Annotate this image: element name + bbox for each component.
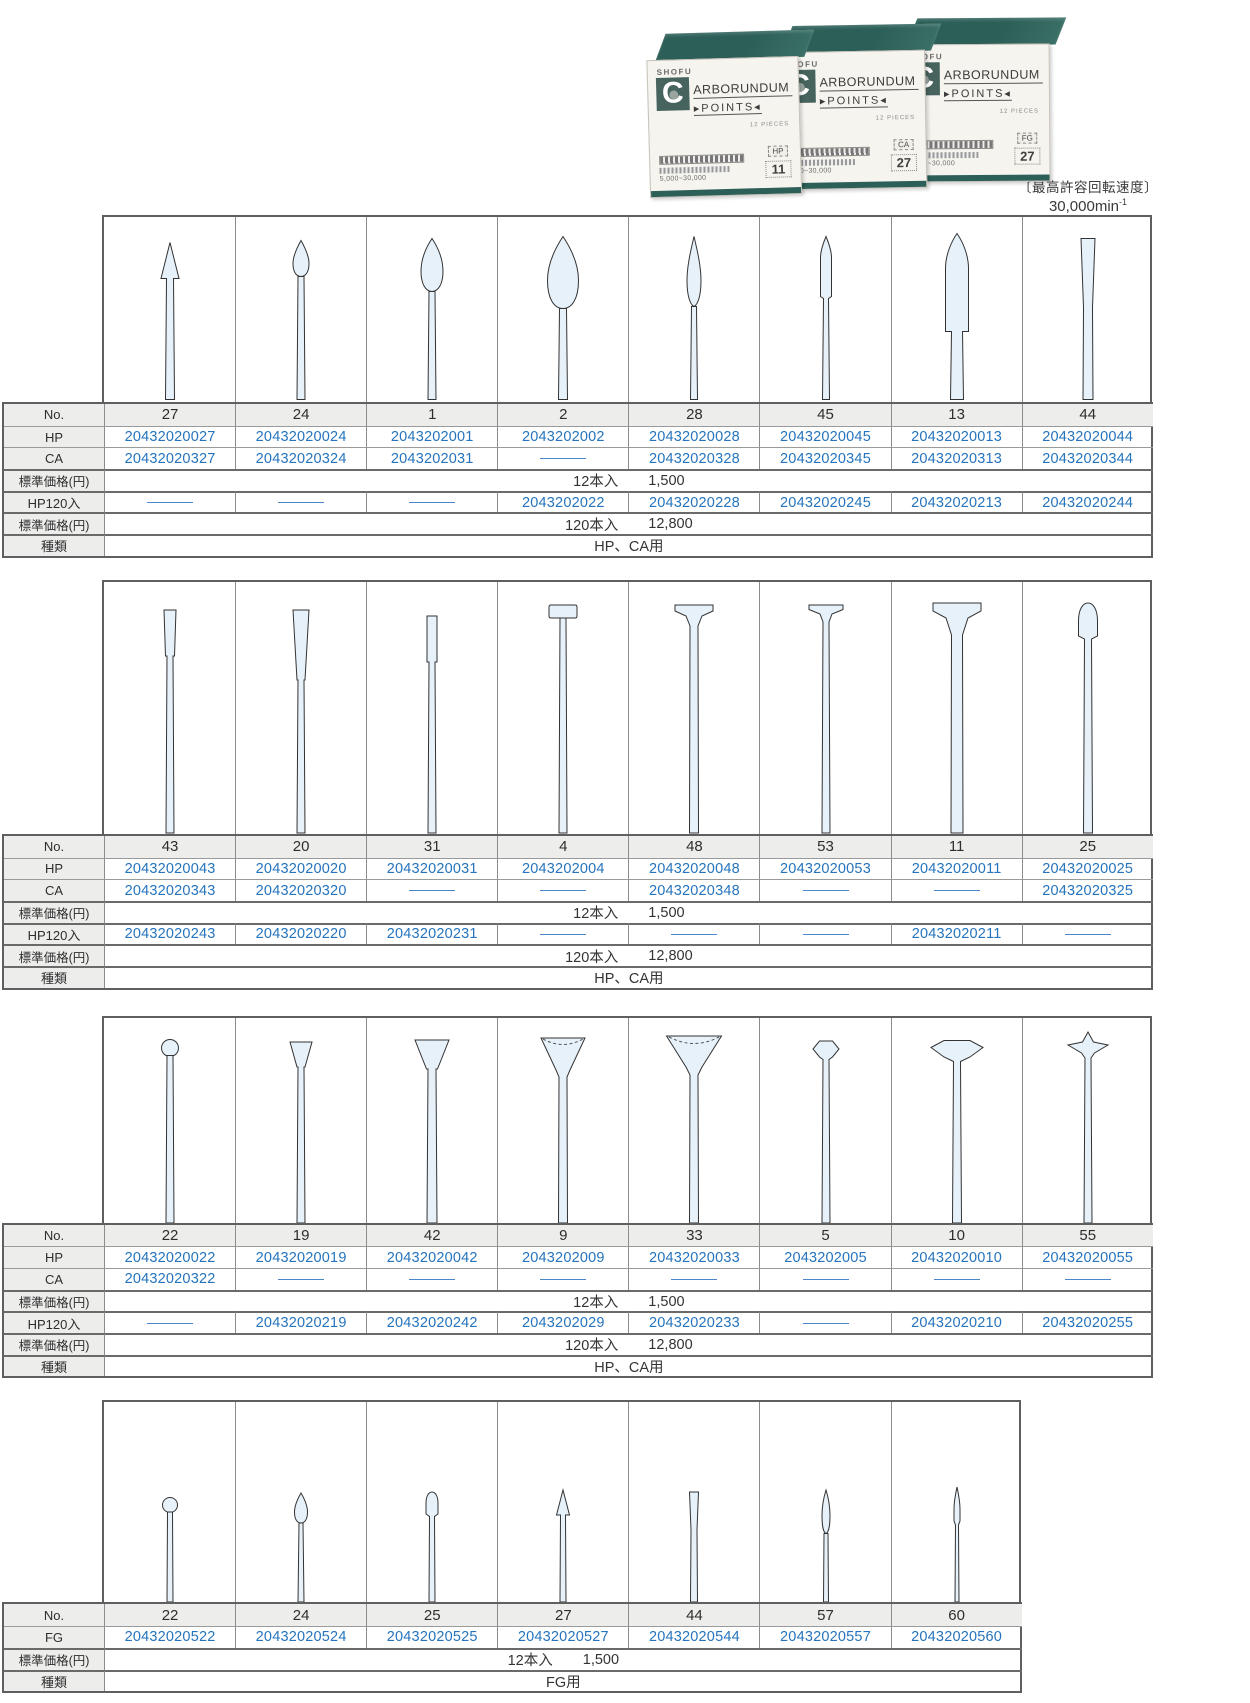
hp120-code-cell: 2043202029 (497, 1311, 628, 1333)
ca-code-cell (628, 1268, 759, 1290)
dash-icon (409, 890, 455, 891)
ca-code-cell: 20432020320 (235, 879, 366, 901)
no-cell: 2 (497, 404, 628, 426)
price-qty: 12本入 (508, 1649, 553, 1669)
dash-icon (671, 934, 717, 935)
no-cell: 42 (366, 1225, 497, 1247)
hp120-code-cell (628, 923, 759, 945)
product-name: ARBORUNDUM ▸POINTS◂ (819, 74, 919, 110)
no-cell: 9 (497, 1225, 628, 1247)
no-cell: 60 (891, 1604, 1022, 1626)
bur-shape-icon (271, 217, 331, 402)
row-label-price: 標準価格(円) (4, 1290, 104, 1312)
product-name: ARBORUNDUM ▸POINTS◂ (944, 68, 1043, 103)
product-photo: SHOFU C ARBORUNDUM ▸POINTS◂ 12 PIECES 5,… (648, 18, 1078, 210)
price-120-cell: 120本入12,800 (104, 944, 1153, 966)
bur-shape-cell-no-45 (759, 217, 890, 402)
hp-code-cell: 20432020027 (104, 426, 235, 448)
no-cell: 19 (235, 1225, 366, 1247)
shape-row (102, 580, 1152, 834)
hp120-code-cell: 20432020242 (366, 1311, 497, 1333)
dash-icon (803, 1279, 849, 1280)
bur-shape-cell-no-22 (104, 1402, 235, 1602)
fg-code-cell: 20432020525 (366, 1626, 497, 1648)
no-cell: 25 (1022, 836, 1153, 858)
ca-code-cell (759, 1268, 890, 1290)
row-label-hp: HP (4, 858, 104, 880)
bur-shape-icon (402, 1018, 462, 1223)
no-cell: 22 (104, 1604, 235, 1626)
bur-shape-icon (1058, 217, 1118, 402)
dash-icon (540, 890, 586, 891)
bur-shape-icon (796, 582, 856, 834)
bur-shape-icon (533, 217, 593, 402)
bur-shape-icon (1058, 582, 1118, 834)
no-cell: 27 (497, 1604, 628, 1626)
dash-icon (278, 1279, 324, 1280)
hp120-code-cell (759, 1311, 890, 1333)
shape-row (102, 1400, 1021, 1602)
ca-code-cell (366, 1268, 497, 1290)
product-table-2: No.432031448531125HP20432020043204320200… (2, 580, 1250, 990)
price-qty: 12本入 (573, 1291, 618, 1311)
price-qty: 120本入 (565, 514, 618, 534)
hp120-code-cell: 20432020220 (235, 923, 366, 945)
hp-code-cell: 20432020011 (891, 858, 1022, 880)
no-cell: 24 (235, 1604, 366, 1626)
price-value: 12,800 (648, 516, 692, 532)
bur-shape-icon (664, 1402, 724, 1602)
bur-shape-cell-no-9 (497, 1018, 628, 1223)
no-cell: 44 (1022, 404, 1153, 426)
bur-shape-icon (927, 1402, 987, 1602)
bur-shape-icon (664, 582, 724, 834)
product-name: ARBORUNDUM ▸POINTS◂ (693, 80, 793, 117)
row-label-type: 種類 (4, 534, 104, 556)
row-label-type: 種類 (4, 1355, 104, 1377)
hp-code-cell: 2043202004 (497, 858, 628, 880)
bur-shape-icon (140, 1402, 200, 1602)
ca-code-cell: 20432020325 (1022, 879, 1153, 901)
bur-shape-icon (271, 1018, 331, 1223)
dash-icon (934, 1279, 980, 1280)
bur-shape-icon (796, 1018, 856, 1223)
no-cell: 27 (104, 404, 235, 426)
no-cell: 43 (104, 836, 235, 858)
dash-icon (540, 458, 586, 459)
no-cell: 22 (104, 1225, 235, 1247)
bur-shape-icon (402, 1402, 462, 1602)
price-120-cell: 120本入12,800 (104, 1333, 1153, 1355)
spec-text-bar (659, 166, 729, 174)
hp-code-cell: 20432020022 (104, 1246, 235, 1268)
row-label-price: 標準価格(円) (4, 901, 104, 923)
bur-shape-icon (927, 582, 987, 834)
bur-shape-icon (271, 1402, 331, 1602)
hp-code-cell: 2043202002 (497, 426, 628, 448)
shape-row (102, 215, 1152, 402)
bur-shape-icon (664, 217, 724, 402)
price-qty: 120本入 (565, 1334, 618, 1354)
box-bottom-strip (651, 187, 801, 197)
hp-code-cell: 2043202001 (366, 426, 497, 448)
spec-grid: No.432031448531125HP20432020043204320200… (2, 834, 1153, 990)
ca-code-cell: 20432020322 (104, 1268, 235, 1290)
ca-code-cell (497, 447, 628, 469)
hp-code-cell: 20432020031 (366, 858, 497, 880)
hp-code-cell: 20432020013 (891, 426, 1022, 448)
row-label-type: 種類 (4, 1670, 104, 1692)
fg-code-cell: 20432020560 (891, 1626, 1022, 1648)
dash-icon (803, 934, 849, 935)
hp-code-cell: 20432020024 (235, 426, 366, 448)
fg-code-cell: 20432020527 (497, 1626, 628, 1648)
hp-code-cell: 20432020043 (104, 858, 235, 880)
pieces-label: 12 PIECES (750, 121, 790, 128)
hp-code-cell: 2043202009 (497, 1246, 628, 1268)
no-cell: 31 (366, 836, 497, 858)
dash-icon (278, 502, 324, 503)
speed-range-text: 5,000~30,000 (660, 174, 745, 183)
pieces-label: 12 PIECES (1000, 109, 1039, 115)
bur-shape-cell-no-27 (104, 217, 235, 402)
pieces-label: 12 PIECES (876, 115, 915, 122)
row-label-hp: HP (4, 426, 104, 448)
bur-shape-icon (271, 582, 331, 834)
ca-code-cell (366, 879, 497, 901)
row-label-hp120: HP120入 (4, 491, 104, 513)
type-cell: HP、CA用 (104, 534, 1153, 556)
hp-code-cell: 20432020025 (1022, 858, 1153, 880)
hp-code-cell: 20432020033 (628, 1246, 759, 1268)
ca-code-cell: 20432020345 (759, 447, 890, 469)
row-label-ca: CA (4, 1268, 104, 1290)
row-label-price: 標準価格(円) (4, 944, 104, 966)
dash-icon (540, 1279, 586, 1280)
no-cell: 53 (759, 836, 890, 858)
dash-icon (1065, 1279, 1111, 1280)
row-label-no: No. (4, 404, 104, 426)
fg-code-cell: 20432020544 (628, 1626, 759, 1648)
no-cell: 5 (759, 1225, 890, 1247)
hp120-code-cell (366, 491, 497, 513)
bur-shape-cell-no-48 (628, 582, 759, 834)
dash-icon (803, 890, 849, 891)
ca-code-cell: 20432020348 (628, 879, 759, 901)
hp-code-cell: 20432020045 (759, 426, 890, 448)
ca-code-cell (235, 1268, 366, 1290)
product-table-4: No.22242527445760FG204320205222043202052… (2, 1400, 1250, 1693)
product-table-1: No.27241228451344HP204320200272043202002… (2, 215, 1250, 558)
price-120-cell: 120本入12,800 (104, 512, 1153, 534)
price-qty: 12本入 (573, 470, 618, 490)
no-cell: 55 (1022, 1225, 1153, 1247)
dash-icon (934, 890, 980, 891)
ca-code-cell: 20432020324 (235, 447, 366, 469)
box-type-label: HP 11 (765, 140, 792, 178)
bur-shape-icon (140, 217, 200, 402)
price-12-cell: 12本入1,500 (104, 1290, 1153, 1312)
hp-code-cell: 20432020019 (235, 1246, 366, 1268)
no-cell: 20 (235, 836, 366, 858)
no-cell: 45 (759, 404, 890, 426)
no-cell: 13 (891, 404, 1022, 426)
hp120-code-cell (104, 1311, 235, 1333)
bur-shape-cell-no-1 (366, 217, 497, 402)
no-cell: 4 (497, 836, 628, 858)
dash-icon (803, 1323, 849, 1324)
bur-shape-icon (796, 217, 856, 402)
price-12-cell: 12本入1,500 (104, 1648, 1022, 1670)
no-cell: 11 (891, 836, 1022, 858)
row-label-fg: FG (4, 1626, 104, 1648)
bur-shape-cell-no-19 (235, 1018, 366, 1223)
catalog-page: SHOFU C ARBORUNDUM ▸POINTS◂ 12 PIECES 5,… (0, 0, 1250, 1703)
dash-icon (409, 502, 455, 503)
no-cell: 33 (628, 1225, 759, 1247)
spec-grid: No.27241228451344HP204320200272043202002… (2, 402, 1153, 558)
bur-shape-cell-no-57 (759, 1402, 890, 1602)
price-value: 12,800 (648, 948, 692, 964)
box-type-label: CA 27 (890, 134, 917, 171)
no-cell: 24 (235, 404, 366, 426)
hp-code-cell: 20432020042 (366, 1246, 497, 1268)
ca-code-cell (497, 879, 628, 901)
bur-shape-cell-no-31 (366, 582, 497, 834)
hp-code-cell: 20432020055 (1022, 1246, 1153, 1268)
dash-icon (1065, 934, 1111, 935)
ca-code-cell (759, 879, 890, 901)
price-qty: 120本入 (565, 946, 618, 966)
bur-shape-cell-no-4 (497, 582, 628, 834)
hp120-code-cell: 2043202022 (497, 491, 628, 513)
bur-shape-cell-no-44 (628, 1402, 759, 1602)
price-value: 1,500 (648, 905, 684, 921)
hp-code-cell: 20432020028 (628, 426, 759, 448)
hp120-code-cell: 20432020231 (366, 923, 497, 945)
dash-icon (671, 1279, 717, 1280)
bur-shape-icon (927, 1018, 987, 1223)
hp120-code-cell: 20432020245 (759, 491, 890, 513)
row-label-price: 標準価格(円) (4, 512, 104, 534)
ca-code-cell: 20432020343 (104, 879, 235, 901)
bur-shape-cell-no-44 (1022, 217, 1153, 402)
speed-value: 30,000min-1 (1018, 197, 1158, 215)
hp120-code-cell (497, 923, 628, 945)
hp120-code-cell: 20432020211 (891, 923, 1022, 945)
no-cell: 25 (366, 1604, 497, 1626)
bur-shape-cell-no-25 (366, 1402, 497, 1602)
bur-shape-icon (533, 1402, 593, 1602)
bur-shape-icon (140, 582, 200, 834)
bur-shape-cell-no-43 (104, 582, 235, 834)
price-value: 1,500 (648, 1294, 684, 1310)
product-logo-row: C ARBORUNDUM ▸POINTS◂ (656, 74, 793, 118)
bur-shape-cell-no-42 (366, 1018, 497, 1223)
dash-icon (409, 1279, 455, 1280)
no-cell: 57 (759, 1604, 890, 1626)
row-label-ca: CA (4, 879, 104, 901)
row-label-hp120: HP120入 (4, 1311, 104, 1333)
bur-shape-cell-no-20 (235, 582, 366, 834)
fg-code-cell: 20432020524 (235, 1626, 366, 1648)
no-cell: 28 (628, 404, 759, 426)
fg-code-cell: 20432020557 (759, 1626, 890, 1648)
hp-code-cell: 20432020053 (759, 858, 890, 880)
price-12-cell: 12本入1,500 (104, 901, 1153, 923)
box-face: SHOFU C ARBORUNDUM ▸POINTS◂ 12 PIECES 5,… (646, 56, 802, 198)
spec-grid: No.22242527445760FG204320205222043202052… (2, 1602, 1022, 1693)
hp120-code-cell (104, 491, 235, 513)
hp120-code-cell (1022, 923, 1153, 945)
hp-code-cell: 20432020048 (628, 858, 759, 880)
bur-shape-icon (533, 582, 593, 834)
shape-row (102, 1016, 1152, 1223)
bur-shape-icon (664, 1018, 724, 1223)
row-label-hp120: HP120入 (4, 923, 104, 945)
hp-code-cell: 2043202005 (759, 1246, 890, 1268)
type-cell: FG用 (104, 1670, 1022, 1692)
row-label-price: 標準価格(円) (4, 1648, 104, 1670)
ca-code-cell: 20432020344 (1022, 447, 1153, 469)
box-type-label: FG 27 (1014, 128, 1040, 165)
hp120-code-cell: 20432020255 (1022, 1311, 1153, 1333)
bur-shape-cell-no-5 (759, 1018, 890, 1223)
bur-shape-cell-no-13 (891, 217, 1022, 402)
ca-code-cell (497, 1268, 628, 1290)
hp120-code-cell (759, 923, 890, 945)
bur-shape-icon (1058, 1018, 1118, 1223)
bur-shape-cell-no-22 (104, 1018, 235, 1223)
row-label-ca: CA (4, 447, 104, 469)
bur-shape-cell-no-53 (759, 582, 890, 834)
bur-shape-icon (927, 217, 987, 402)
hp120-code-cell: 20432020219 (235, 1311, 366, 1333)
spec-text-bar (659, 154, 744, 165)
bur-shape-cell-no-10 (891, 1018, 1022, 1223)
row-label-no: No. (4, 1225, 104, 1247)
ca-code-cell (891, 1268, 1022, 1290)
row-label-hp: HP (4, 1246, 104, 1268)
dash-icon (147, 502, 193, 503)
bur-shape-cell-no-24 (235, 217, 366, 402)
bur-shape-cell-no-11 (891, 582, 1022, 834)
dash-icon (147, 1323, 193, 1324)
ca-code-cell: 20432020313 (891, 447, 1022, 469)
product-table-3: No.22194293351055HP204320200222043202001… (2, 1016, 1250, 1379)
spec-lines: 5,000~30,000 (659, 154, 745, 183)
bur-shape-icon (796, 1402, 856, 1602)
price-value: 1,500 (648, 473, 684, 489)
hp120-code-cell: 20432020213 (891, 491, 1022, 513)
hp120-code-cell (235, 491, 366, 513)
ca-code-cell (1022, 1268, 1153, 1290)
bur-shape-icon (140, 1018, 200, 1223)
ca-code-cell: 20432020327 (104, 447, 235, 469)
hp120-code-cell: 20432020210 (891, 1311, 1022, 1333)
bur-shape-cell-no-25 (1022, 582, 1153, 834)
bur-shape-cell-no-33 (628, 1018, 759, 1223)
product-tables: No.27241228451344HP204320200272043202002… (0, 215, 1250, 1693)
hp120-code-cell: 20432020243 (104, 923, 235, 945)
bur-shape-cell-no-24 (235, 1402, 366, 1602)
hp120-code-cell: 20432020244 (1022, 491, 1153, 513)
bur-shape-cell-no-28 (628, 217, 759, 402)
price-value: 1,500 (583, 1652, 619, 1668)
product-box-hp: SHOFU C ARBORUNDUM ▸POINTS◂ 12 PIECES 5,… (646, 30, 811, 204)
dash-icon (540, 934, 586, 935)
row-label-price: 標準価格(円) (4, 469, 104, 491)
no-cell: 48 (628, 836, 759, 858)
type-cell: HP、CA用 (104, 1355, 1153, 1377)
bur-shape-cell-no-55 (1022, 1018, 1153, 1223)
ca-code-cell: 2043202031 (366, 447, 497, 469)
row-label-no: No. (4, 1604, 104, 1626)
row-label-type: 種類 (4, 966, 104, 988)
bur-shape-cell-no-60 (891, 1402, 1022, 1602)
ca-code-cell (891, 879, 1022, 901)
hp-code-cell: 20432020020 (235, 858, 366, 880)
bur-shape-cell-no-27 (497, 1402, 628, 1602)
price-value: 12,800 (648, 1337, 692, 1353)
price-qty: 12本入 (573, 902, 618, 922)
hp-code-cell: 20432020044 (1022, 426, 1153, 448)
bur-shape-icon (402, 217, 462, 402)
no-cell: 1 (366, 404, 497, 426)
row-label-no: No. (4, 836, 104, 858)
hp-code-cell: 20432020010 (891, 1246, 1022, 1268)
row-label-price: 標準価格(円) (4, 1333, 104, 1355)
hp120-code-cell: 20432020233 (628, 1311, 759, 1333)
no-cell: 44 (628, 1604, 759, 1626)
price-12-cell: 12本入1,500 (104, 469, 1153, 491)
spec-grid: No.22194293351055HP204320200222043202001… (2, 1223, 1153, 1379)
no-cell: 10 (891, 1225, 1022, 1247)
bur-shape-cell-no-2 (497, 217, 628, 402)
type-cell: HP、CA用 (104, 966, 1153, 988)
bur-shape-icon (533, 1018, 593, 1223)
hp120-code-cell: 20432020228 (628, 491, 759, 513)
bur-shape-icon (402, 582, 462, 834)
fg-code-cell: 20432020522 (104, 1626, 235, 1648)
ca-code-cell: 20432020328 (628, 447, 759, 469)
